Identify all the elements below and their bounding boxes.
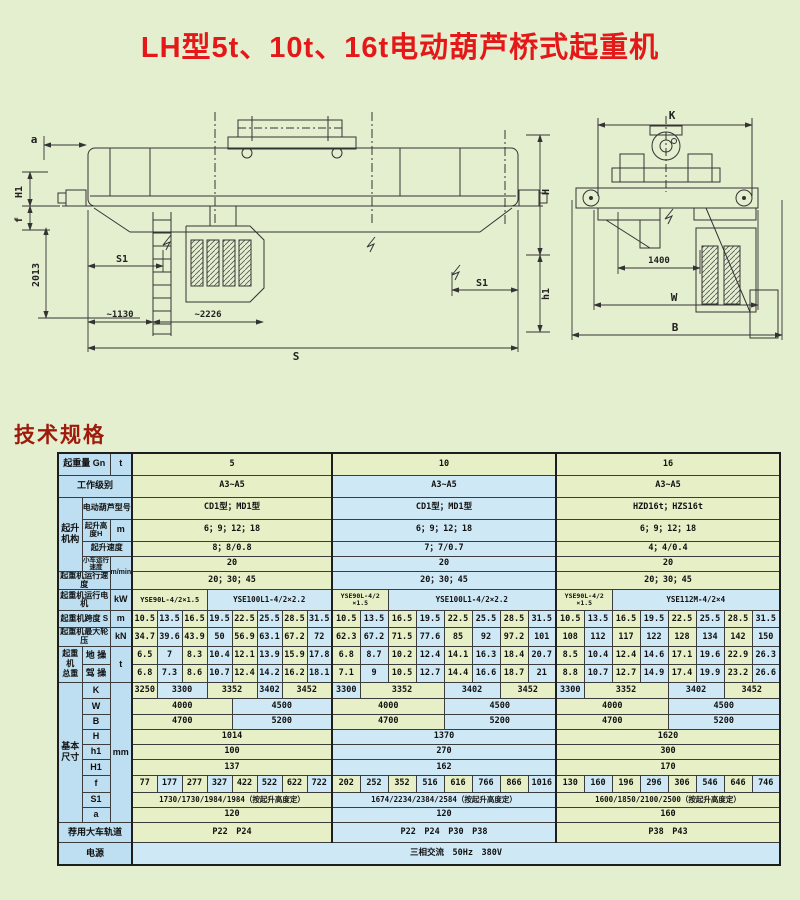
spec-cell: 296 [640, 775, 668, 792]
spec-cell: 3452 [724, 682, 780, 698]
spec-cell: 17.1 [668, 646, 696, 664]
spec-cell: HZD16t；HZS16t [556, 497, 780, 519]
spec-label: 起重机跨度 S [58, 611, 110, 628]
spec-unit: m [110, 611, 132, 628]
dim-label-H1: H1 [14, 186, 25, 198]
end-view-dimensions: K 1400 W B [572, 109, 782, 340]
section-heading: 技术规格 [14, 419, 106, 449]
spec-cell: 120 [332, 807, 556, 822]
spec-label: 荐用大车轨道 [58, 822, 132, 842]
dim-label-2226: ~2226 [194, 310, 221, 320]
spec-cell: 20；30；45 [556, 571, 780, 590]
spec-label: B [82, 714, 110, 729]
spec-cell: 3452 [500, 682, 556, 698]
spec-cell: 18.1 [307, 664, 332, 682]
spec-cell: 16 [556, 453, 780, 475]
spec-cell: 19.6 [696, 646, 724, 664]
spec-cell: 766 [472, 775, 500, 792]
spec-cell: 646 [724, 775, 752, 792]
spec-cell: 252 [360, 775, 388, 792]
spec-cell: 13.5 [157, 611, 182, 628]
spec-cell: P22 P24 [132, 822, 332, 842]
dim-label-h1: h1 [541, 288, 552, 300]
spec-cell: 177 [157, 775, 182, 792]
spec-label: 工作级别 [58, 475, 132, 497]
spec-cell: 43.9 [182, 628, 207, 647]
spec-cell: 20 [132, 556, 332, 571]
spec-cell: 8.8 [556, 664, 584, 682]
spec-cell: 13.5 [584, 611, 612, 628]
spec-cell: 622 [282, 775, 307, 792]
spec-cell: 4000 [556, 698, 668, 714]
spec-cell: 5 [132, 453, 332, 475]
spec-cell: YSE90L-4/2 ×1.5 [556, 590, 612, 611]
spec-cell: 50 [207, 628, 232, 647]
spec-cell: 28.5 [500, 611, 528, 628]
spec-cell: 71.5 [388, 628, 416, 647]
spec-cell: 130 [556, 775, 584, 792]
spec-cell: 23.2 [724, 664, 752, 682]
spec-cell: 150 [752, 628, 780, 647]
spec-label: 起重机运行速度 [58, 571, 110, 590]
spec-cell: 5200 [668, 714, 780, 729]
spec-cell: 277 [182, 775, 207, 792]
spec-cell: 10.5 [332, 611, 360, 628]
spec-cell: 18.4 [500, 646, 528, 664]
spec-cell: YSE90L-4/2×1.5 [132, 590, 207, 611]
spec-cell: 14.1 [444, 646, 472, 664]
spec-cell: A3~A5 [332, 475, 556, 497]
spec-label: f [82, 775, 110, 792]
spec-cell: 10.5 [388, 664, 416, 682]
spec-cell: 100 [132, 744, 332, 759]
spec-cell: 18.7 [500, 664, 528, 682]
spec-label: 起重机最大轮压 [58, 628, 110, 647]
spec-cell: 4；4/0.4 [556, 541, 780, 556]
spec-cell: 19.5 [416, 611, 444, 628]
spec-cell: A3~A5 [132, 475, 332, 497]
spec-label: S1 [82, 792, 110, 807]
spec-cell: 270 [332, 744, 556, 759]
spec-group: 起重 机 总重 [58, 646, 82, 682]
dim-label-H: H [541, 189, 552, 195]
spec-cell: 746 [752, 775, 780, 792]
spec-cell: 112 [584, 628, 612, 647]
spec-cell: 120 [132, 807, 332, 822]
spec-cell: 14.9 [640, 664, 668, 682]
spec-cell: 3452 [282, 682, 332, 698]
end-view-cab [696, 208, 778, 338]
spec-cell: 10.7 [207, 664, 232, 682]
spec-cell: 3300 [556, 682, 584, 698]
spec-cell: 8；8/0.8 [132, 541, 332, 556]
spec-cell: 4000 [132, 698, 232, 714]
spec-cell: 17.4 [668, 664, 696, 682]
spec-cell: 16.6 [472, 664, 500, 682]
spec-cell: 3300 [157, 682, 207, 698]
ladder [153, 212, 171, 336]
dim-label-a: a [31, 133, 38, 146]
spec-cell: 22.5 [668, 611, 696, 628]
spec-cell: YSE100L1-4/2×2.2 [207, 590, 332, 611]
spec-cell: 4500 [668, 698, 780, 714]
spec-label: 驾 操 [82, 664, 110, 682]
spec-cell: 170 [556, 759, 780, 775]
spec-cell: 3250 [132, 682, 157, 698]
spec-cell: 12.4 [232, 664, 257, 682]
spec-unit: m/min [110, 556, 132, 590]
spec-unit: t [110, 646, 132, 682]
spec-cell: YSE112M-4/2×4 [612, 590, 780, 611]
spec-cell: 67.2 [282, 628, 307, 647]
hoist-trolley [228, 116, 356, 158]
spec-cell: 7.3 [157, 664, 182, 682]
spec-cell: 6；9；12；18 [332, 519, 556, 541]
spec-cell: 10.7 [584, 664, 612, 682]
spec-cell: 3352 [360, 682, 444, 698]
spec-cell: YSE100L1-4/2×2.2 [388, 590, 556, 611]
spec-label: 起升速度 [82, 541, 132, 556]
spec-cell: 1370 [332, 729, 556, 744]
spec-cell: 3300 [332, 682, 360, 698]
spec-cell: 77 [132, 775, 157, 792]
spec-cell: 20；30；45 [132, 571, 332, 590]
spec-cell: 22.5 [444, 611, 472, 628]
spec-cell: 162 [332, 759, 556, 775]
spec-cell: 10.4 [207, 646, 232, 664]
spec-cell: 3352 [207, 682, 257, 698]
spec-cell: 1600/1850/2100/2500（按起升高度定） [556, 792, 780, 807]
spec-cell: 1620 [556, 729, 780, 744]
spec-cell: 12.4 [416, 646, 444, 664]
girder-body [88, 148, 518, 206]
spec-cell: 6.8 [332, 646, 360, 664]
spec-cell: 6；9；12；18 [132, 519, 332, 541]
spec-unit: kW [110, 590, 132, 611]
spec-cell: 522 [257, 775, 282, 792]
spec-cell: 196 [612, 775, 640, 792]
spec-cell: 160 [584, 775, 612, 792]
spec-cell: 134 [696, 628, 724, 647]
spec-cell: 300 [556, 744, 780, 759]
spec-cell: 202 [332, 775, 360, 792]
spec-cell: 7；7/0.7 [332, 541, 556, 556]
spec-cell: 39.6 [157, 628, 182, 647]
dim-label-S: S [293, 350, 300, 363]
dim-label-S1-right: S1 [476, 278, 488, 289]
spec-label: 电源 [58, 842, 132, 865]
spec-cell: 72 [307, 628, 332, 647]
spec-cell: 77.6 [416, 628, 444, 647]
dim-label-f: f [14, 217, 25, 223]
control-cab [186, 206, 264, 302]
spec-cell: 85 [444, 628, 472, 647]
spec-cell: 22.5 [232, 611, 257, 628]
spec-cell: 13.9 [257, 646, 282, 664]
spec-cell: 26.3 [752, 646, 780, 664]
page-title: LH型5t、10t、16t电动葫芦桥式起重机 [0, 24, 800, 66]
spec-cell: 10.2 [388, 646, 416, 664]
spec-cell: 63.1 [257, 628, 282, 647]
spec-cell: 14.6 [640, 646, 668, 664]
spec-cell: 21 [528, 664, 556, 682]
spec-cell: 4700 [556, 714, 668, 729]
spec-cell: 31.5 [307, 611, 332, 628]
spec-cell: 16.5 [612, 611, 640, 628]
spec-cell: 306 [668, 775, 696, 792]
spec-cell: 9 [360, 664, 388, 682]
spec-cell: 6；9；12；18 [556, 519, 780, 541]
spec-cell: 15.9 [282, 646, 307, 664]
spec-cell: 142 [724, 628, 752, 647]
spec-label: K [82, 682, 110, 698]
spec-unit: mm [110, 682, 132, 822]
spec-cell: 1730/1730/1984/1984（按起升高度定） [132, 792, 332, 807]
spec-cell: 4500 [232, 698, 332, 714]
spec-cell: 62.3 [332, 628, 360, 647]
spec-cell: 三相交流 50Hz 380V [132, 842, 780, 865]
crane-side-view [58, 112, 547, 336]
spec-label: H [82, 729, 110, 744]
spec-group: 基本 尺寸 [58, 682, 82, 822]
dim-label-1400: 1400 [648, 256, 670, 266]
spec-cell: 31.5 [752, 611, 780, 628]
spec-cell: 10.4 [584, 646, 612, 664]
spec-cell: 92 [472, 628, 500, 647]
spec-cell: 327 [207, 775, 232, 792]
spec-cell: 19.5 [207, 611, 232, 628]
spec-group: 起升 机构 [58, 497, 82, 571]
spec-cell: 352 [388, 775, 416, 792]
spec-cell: 22.9 [724, 646, 752, 664]
bridge-beam [576, 188, 758, 208]
spec-cell: 866 [500, 775, 528, 792]
spec-label: 地 操 [82, 646, 110, 664]
spec-cell: 1014 [132, 729, 332, 744]
spec-cell: 5200 [444, 714, 556, 729]
spec-cell: 10 [332, 453, 556, 475]
spec-cell: 1674/2234/2384/2584（按起升高度定） [332, 792, 556, 807]
spec-cell: 25.5 [257, 611, 282, 628]
spec-cell: CD1型；MD1型 [132, 497, 332, 519]
spec-label: 小车运行速度 [82, 556, 110, 571]
dim-label-1130: ~1130 [106, 310, 133, 320]
spec-unit: t [110, 453, 132, 475]
spec-cell: 67.2 [360, 628, 388, 647]
spec-cell: 10.5 [132, 611, 157, 628]
spec-cell: 8.3 [182, 646, 207, 664]
spec-cell: 28.5 [282, 611, 307, 628]
spec-cell: 6.8 [132, 664, 157, 682]
spec-cell: 546 [696, 775, 724, 792]
spec-cell: P22 P24 P30 P38 [332, 822, 556, 842]
spec-cell: 3402 [444, 682, 500, 698]
spec-cell: 31.5 [528, 611, 556, 628]
spec-cell: 97.2 [500, 628, 528, 647]
spec-cell: 56.9 [232, 628, 257, 647]
spec-cell: 1016 [528, 775, 556, 792]
spec-cell: 20 [556, 556, 780, 571]
spec-cell: 4700 [332, 714, 444, 729]
spec-cell: 20 [332, 556, 556, 571]
spec-cell: 14.4 [444, 664, 472, 682]
spec-cell: 28.5 [724, 611, 752, 628]
spec-cell: 20.7 [528, 646, 556, 664]
spec-cell: 16.2 [282, 664, 307, 682]
spec-cell: 128 [668, 628, 696, 647]
spec-label: 起重机运行电机 [58, 590, 110, 611]
spec-cell: 12.7 [416, 664, 444, 682]
spec-cell: 7.1 [332, 664, 360, 682]
spec-cell: 16.5 [388, 611, 416, 628]
spec-cell: 4700 [132, 714, 232, 729]
spec-cell: 8.5 [556, 646, 584, 664]
spec-cell: 3352 [584, 682, 668, 698]
spec-label: H1 [82, 759, 110, 775]
spec-unit: m [110, 519, 132, 541]
spec-cell: 7 [157, 646, 182, 664]
spec-cell: 722 [307, 775, 332, 792]
spec-cell: 25.5 [472, 611, 500, 628]
dim-label-S1-left: S1 [116, 254, 128, 265]
spec-cell: 34.7 [132, 628, 157, 647]
spec-cell: 19.9 [696, 664, 724, 682]
spec-cell: 117 [612, 628, 640, 647]
spec-cell: 12.1 [232, 646, 257, 664]
spec-cell: 8.6 [182, 664, 207, 682]
spec-cell: 616 [444, 775, 472, 792]
spec-cell: 516 [416, 775, 444, 792]
spec-cell: 8.7 [360, 646, 388, 664]
spec-cell: 16.3 [472, 646, 500, 664]
spec-cell: 4500 [444, 698, 556, 714]
spec-label: 起升高度H [82, 519, 110, 541]
spec-cell: 12.7 [612, 664, 640, 682]
spec-table: 起重量 Gnt51016工作级别A3~A5A3~A5A3~A5起升 机构电动葫芦… [57, 452, 781, 866]
spec-cell: 20；30；45 [332, 571, 556, 590]
spec-cell: 13.5 [360, 611, 388, 628]
spec-cell: CD1型；MD1型 [332, 497, 556, 519]
spec-cell: 108 [556, 628, 584, 647]
spec-cell: 19.5 [640, 611, 668, 628]
spec-cell: 160 [556, 807, 780, 822]
spec-cell: YSE90L-4/2 ×1.5 [332, 590, 388, 611]
spec-cell: 122 [640, 628, 668, 647]
spec-cell: 17.8 [307, 646, 332, 664]
spec-cell: 4000 [332, 698, 444, 714]
spec-cell: 5200 [232, 714, 332, 729]
spec-cell: 25.5 [696, 611, 724, 628]
spec-cell: 422 [232, 775, 257, 792]
spec-cell: 16.5 [182, 611, 207, 628]
dim-label-B: B [672, 321, 679, 334]
spec-cell: 3402 [257, 682, 282, 698]
spec-label: 起重量 Gn [58, 453, 110, 475]
spec-cell: 101 [528, 628, 556, 647]
spec-label: 电动葫芦型号 [82, 497, 132, 519]
technical-drawings: a H1 f 2013 S1 ~1130 ~2226 S H h1 S1 [0, 100, 800, 390]
spec-label: h1 [82, 744, 110, 759]
spec-cell: 3402 [668, 682, 724, 698]
spec-cell: A3~A5 [556, 475, 780, 497]
dim-label-2013: 2013 [31, 263, 42, 287]
spec-unit: kN [110, 628, 132, 647]
dim-label-K: K [669, 109, 676, 122]
dim-label-W: W [671, 291, 678, 304]
spec-cell: 137 [132, 759, 332, 775]
spec-label: W [82, 698, 110, 714]
spec-cell: 10.5 [556, 611, 584, 628]
spec-cell: 26.6 [752, 664, 780, 682]
spec-cell: 6.5 [132, 646, 157, 664]
side-view-dimensions: a H1 f 2013 S1 ~1130 ~2226 S H h1 S1 [14, 133, 552, 363]
spec-label: a [82, 807, 110, 822]
spec-cell: 12.4 [612, 646, 640, 664]
spec-cell: P38 P43 [556, 822, 780, 842]
spec-cell: 14.2 [257, 664, 282, 682]
